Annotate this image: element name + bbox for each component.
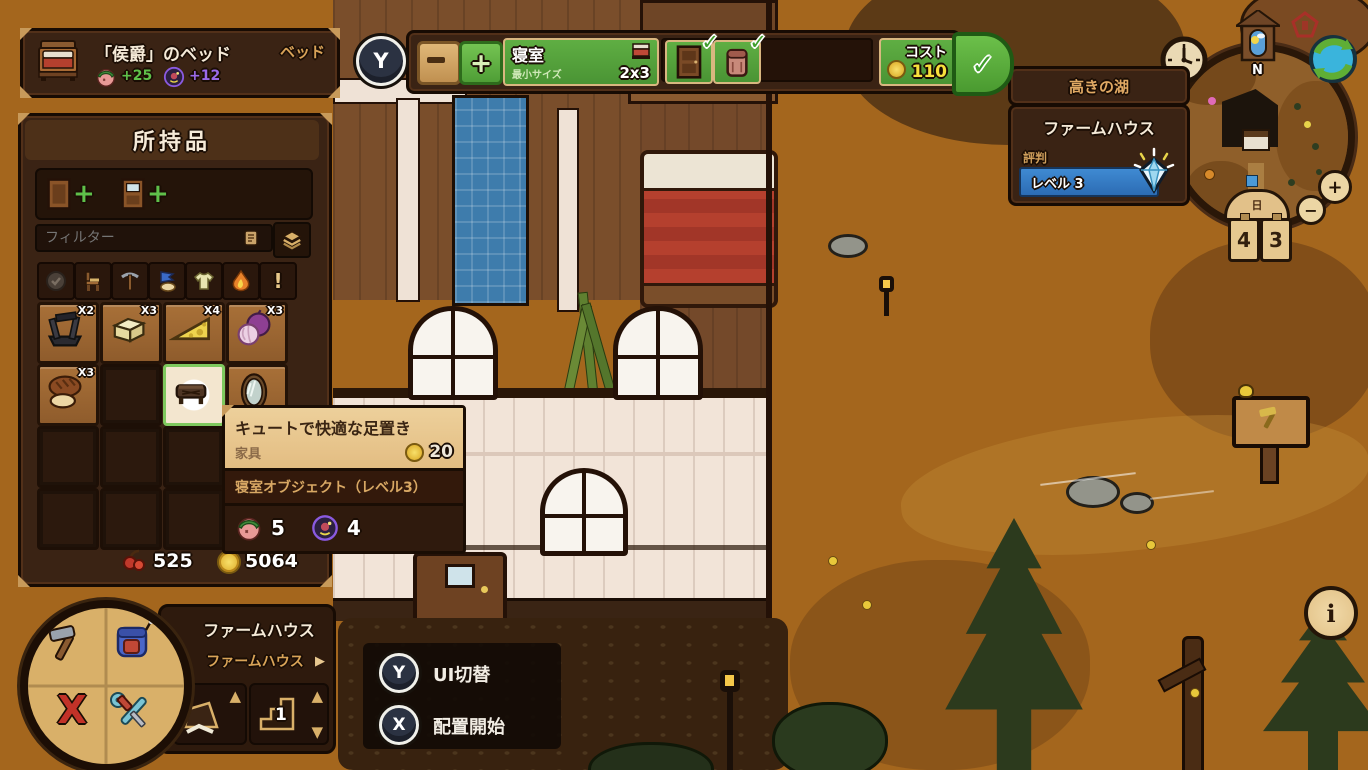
chevron-right-icon: ▶	[315, 654, 325, 669]
flower	[1146, 540, 1156, 550]
window-upper-left	[408, 306, 498, 400]
add-chest-button[interactable]: +	[121, 177, 183, 211]
flower	[828, 556, 838, 566]
footrest-title: キュートで快適な足置き	[235, 415, 453, 439]
front-door	[413, 552, 507, 624]
info-icon: i	[1326, 599, 1335, 628]
inventory-title-bar: 所持品	[25, 120, 319, 160]
inventory-slot-empty[interactable]	[37, 426, 99, 488]
requirements-panel: ✓ ✓	[661, 38, 873, 82]
requirement-door-slot[interactable]: ✓	[665, 40, 713, 84]
footrest-requirement: 寝室オブジェクト（レベル3）	[235, 480, 427, 496]
villager-green-icon	[95, 66, 117, 88]
wall-beam	[333, 388, 772, 398]
plus-icon: +	[73, 179, 95, 209]
counter-left-value: 4	[1237, 228, 1251, 252]
footrest-tooltip: キュートで快適な足置き 家具 20 寝室オブジェクト（レベル3） 5 4	[222, 405, 466, 554]
building-panel: ファームハウス 評判 レベル 3	[1008, 104, 1190, 206]
cost-value: 110	[912, 62, 948, 82]
reputation-label: 評判	[1023, 149, 1047, 166]
region-name: 高きの湖	[1069, 76, 1129, 97]
inventory-slot-footrest-selected[interactable]	[163, 364, 225, 426]
minimap[interactable]: N +	[1160, 5, 1368, 270]
category-tools-button[interactable]	[111, 262, 149, 300]
x-hint-button[interactable]: X	[379, 705, 419, 745]
door-window-icon	[121, 178, 145, 210]
add-storage-button[interactable]: +	[47, 177, 109, 211]
item-count: X4	[204, 304, 220, 317]
pine-tree	[1248, 608, 1368, 770]
bedroll-icon	[724, 45, 750, 79]
inventory-slot-loom[interactable]: X2	[37, 302, 99, 364]
build-menu-title: ファームハウス	[203, 621, 315, 640]
item-count: X3	[141, 304, 157, 317]
season-globe-icon[interactable]	[1307, 33, 1359, 85]
room-name: 寝室	[512, 42, 544, 66]
item-count: X3	[78, 366, 94, 379]
inventory-slot-cheese[interactable]: X4	[163, 302, 225, 364]
bed-tooltip-category: ベッド	[280, 41, 325, 62]
x-hint-letter: X	[392, 715, 405, 735]
inventory-slot-empty[interactable]	[100, 364, 162, 426]
footrest-price: 20	[429, 442, 453, 462]
minimap-zoom-out-button[interactable]: −	[1296, 195, 1326, 225]
minimap-marker-orange	[1204, 169, 1215, 180]
bed-tooltip: 「侯爵」のベッド ベッド +25 +12	[20, 28, 340, 98]
list-icon	[243, 230, 259, 246]
coin-icon	[887, 60, 906, 79]
diamond-icon	[1127, 145, 1181, 199]
inventory-slot-empty[interactable]	[100, 488, 162, 550]
door-icon	[676, 45, 702, 79]
minimap-player-house	[1242, 129, 1270, 151]
check-icon: ✓	[971, 48, 994, 81]
lantern-post	[720, 670, 742, 770]
inventory-slot-butter[interactable]: X3	[100, 302, 162, 364]
bed-mini-icon	[631, 43, 651, 61]
building-selector-value: ファームハウス	[195, 651, 315, 671]
minimap-marker-blue	[1246, 175, 1258, 187]
x-delete-icon: X	[57, 691, 86, 729]
all-filter-icon	[44, 269, 68, 293]
delete-mode-button[interactable]: X	[50, 686, 94, 734]
y-button-label: Y	[373, 49, 388, 73]
exclaim-icon: !	[273, 269, 282, 293]
repair-mode-button[interactable]	[108, 688, 156, 736]
food-icon	[155, 269, 179, 293]
min-size-label: 最小サイズ	[512, 66, 562, 81]
bed-tooltip-title: 「侯爵」のベッド	[95, 40, 231, 65]
inventory-slot-empty[interactable]	[100, 426, 162, 488]
x-hint-label: 配置開始	[433, 713, 505, 739]
interior-wall-beam	[557, 108, 579, 312]
day-label: 日	[1252, 197, 1263, 213]
bush	[772, 702, 888, 770]
inventory-slot-empty[interactable]	[163, 488, 225, 550]
furniture-icon	[81, 269, 105, 293]
bed-item-icon	[35, 39, 81, 83]
build-tool-button[interactable]	[42, 622, 86, 666]
inventory-slot-bread[interactable]: X3	[37, 364, 99, 426]
bird	[1238, 384, 1254, 398]
signpost	[1232, 396, 1304, 480]
bathroom-tiles	[452, 95, 529, 306]
minus-icon	[427, 57, 445, 63]
cost-label: コスト	[905, 42, 947, 62]
minimap-zoom-in-button[interactable]: +	[1318, 170, 1352, 204]
floor-number: 1	[275, 705, 287, 725]
rock	[828, 234, 868, 258]
coin-icon	[405, 443, 424, 462]
category-misc-button[interactable]: !	[259, 262, 297, 300]
counter-right-value: 3	[1269, 228, 1283, 252]
floor-selector-box: 1 ▲ ▼	[249, 683, 329, 745]
confirm-button[interactable]: ✓	[952, 32, 1014, 96]
bed-buff-purple: +12	[189, 68, 220, 84]
bed	[640, 150, 778, 308]
increase-size-button[interactable]: +	[459, 41, 503, 85]
plus-icon: +	[470, 50, 493, 77]
room-size-value: 2x3	[619, 64, 650, 82]
villager-green-icon	[235, 514, 263, 542]
sort-layers-button[interactable]	[273, 222, 311, 258]
footrest-tooltip-header: キュートで快適な足置き 家具 20	[225, 408, 463, 471]
counter-plate-right: 3	[1260, 218, 1292, 262]
tools-crossed-icon	[108, 688, 156, 736]
y-hint-label: UI切替	[433, 661, 490, 687]
category-all-button[interactable]	[37, 262, 75, 300]
tools-icon	[118, 269, 142, 293]
inventory-slot-empty[interactable]	[163, 426, 225, 488]
item-count: X2	[78, 304, 94, 317]
y-hint-button[interactable]: Y	[379, 653, 419, 693]
decrease-size-button[interactable]	[417, 41, 461, 85]
check-icon: ✓	[749, 30, 767, 54]
plus-icon: +	[147, 179, 169, 209]
category-furniture-button[interactable]	[74, 262, 112, 300]
villager-purple-icon	[163, 66, 185, 88]
y-button-floating[interactable]: Y	[356, 36, 406, 86]
hammer-sign-icon	[1252, 404, 1286, 434]
filter-input[interactable]	[35, 224, 273, 252]
clothing-icon	[192, 269, 216, 293]
weather-window-icon	[1236, 10, 1280, 62]
level-value: レベル 3	[1031, 173, 1084, 192]
flower	[862, 600, 872, 610]
footrest-stat-green: 5	[271, 516, 285, 540]
flower	[1190, 688, 1200, 698]
minimap-marker-yellow	[1304, 121, 1311, 128]
bed-buff-green: +25	[121, 68, 152, 84]
compass-north-label: N	[1252, 63, 1263, 78]
footrest-requirement-bar: 寝室オブジェクト（レベル3）	[225, 471, 463, 506]
region-bar: 高きの湖	[1008, 66, 1190, 106]
room-info-panel: 寝室 最小サイズ 2x3	[503, 38, 659, 86]
footrest-item-icon	[169, 370, 213, 414]
inventory-title: 所持品	[133, 124, 211, 156]
category-clothing-button[interactable]	[185, 262, 223, 300]
berries-count: 525	[153, 550, 193, 572]
footrest-category: 家具	[235, 443, 405, 462]
footrest-stat-purple: 4	[347, 516, 361, 540]
berries-currency-icon	[121, 548, 147, 574]
villager-purple-icon	[311, 514, 339, 542]
hammer-icon	[42, 622, 86, 666]
inventory-mode-button[interactable]	[110, 618, 156, 664]
storage-source-bar: + +	[35, 168, 313, 220]
room-toolbar: + 寝室 最小サイズ 2x3 ✓ ✓ コスト 110	[406, 30, 961, 94]
roof-up-button[interactable]: ▲	[229, 687, 241, 705]
info-button[interactable]: i	[1304, 586, 1358, 640]
cost-panel: コスト 110	[879, 38, 955, 86]
requirement-bed-slot[interactable]: ✓	[713, 40, 761, 84]
game-screen: + 寝室 最小サイズ 2x3 ✓ ✓ コスト 110 ✓ Y	[0, 0, 1368, 770]
inventory-slot-empty[interactable]	[37, 488, 99, 550]
door-icon	[47, 178, 71, 210]
counter-plate-left: 4	[1228, 218, 1260, 262]
interior-wall-beam	[396, 98, 420, 302]
backpack-icon	[110, 618, 156, 664]
item-count: X3	[267, 304, 283, 317]
layers-icon	[281, 229, 303, 251]
lantern	[879, 276, 895, 316]
controller-hints-panel: Y UI切替 X 配置開始	[363, 643, 561, 749]
window-upper-right	[613, 306, 703, 400]
footrest-stats-row: 5 4	[225, 506, 463, 551]
building-name: ファームハウス	[1043, 119, 1155, 138]
minimap-marker-pink	[1208, 97, 1216, 105]
floor-down-button[interactable]: ▼	[311, 723, 323, 741]
window-lower	[540, 468, 628, 556]
build-wheel: X	[20, 600, 192, 770]
y-hint-letter: Y	[393, 663, 405, 683]
dead-tree-trunk	[1182, 636, 1204, 770]
category-food-button[interactable]	[148, 262, 186, 300]
inventory-slot-onion[interactable]: X3	[226, 302, 288, 364]
floor-up-button[interactable]: ▲	[311, 687, 323, 705]
rock	[1120, 492, 1154, 514]
building-selector[interactable]: ファームハウス ▶	[195, 649, 325, 673]
fire-icon	[229, 269, 253, 293]
category-cooking-button[interactable]	[222, 262, 260, 300]
